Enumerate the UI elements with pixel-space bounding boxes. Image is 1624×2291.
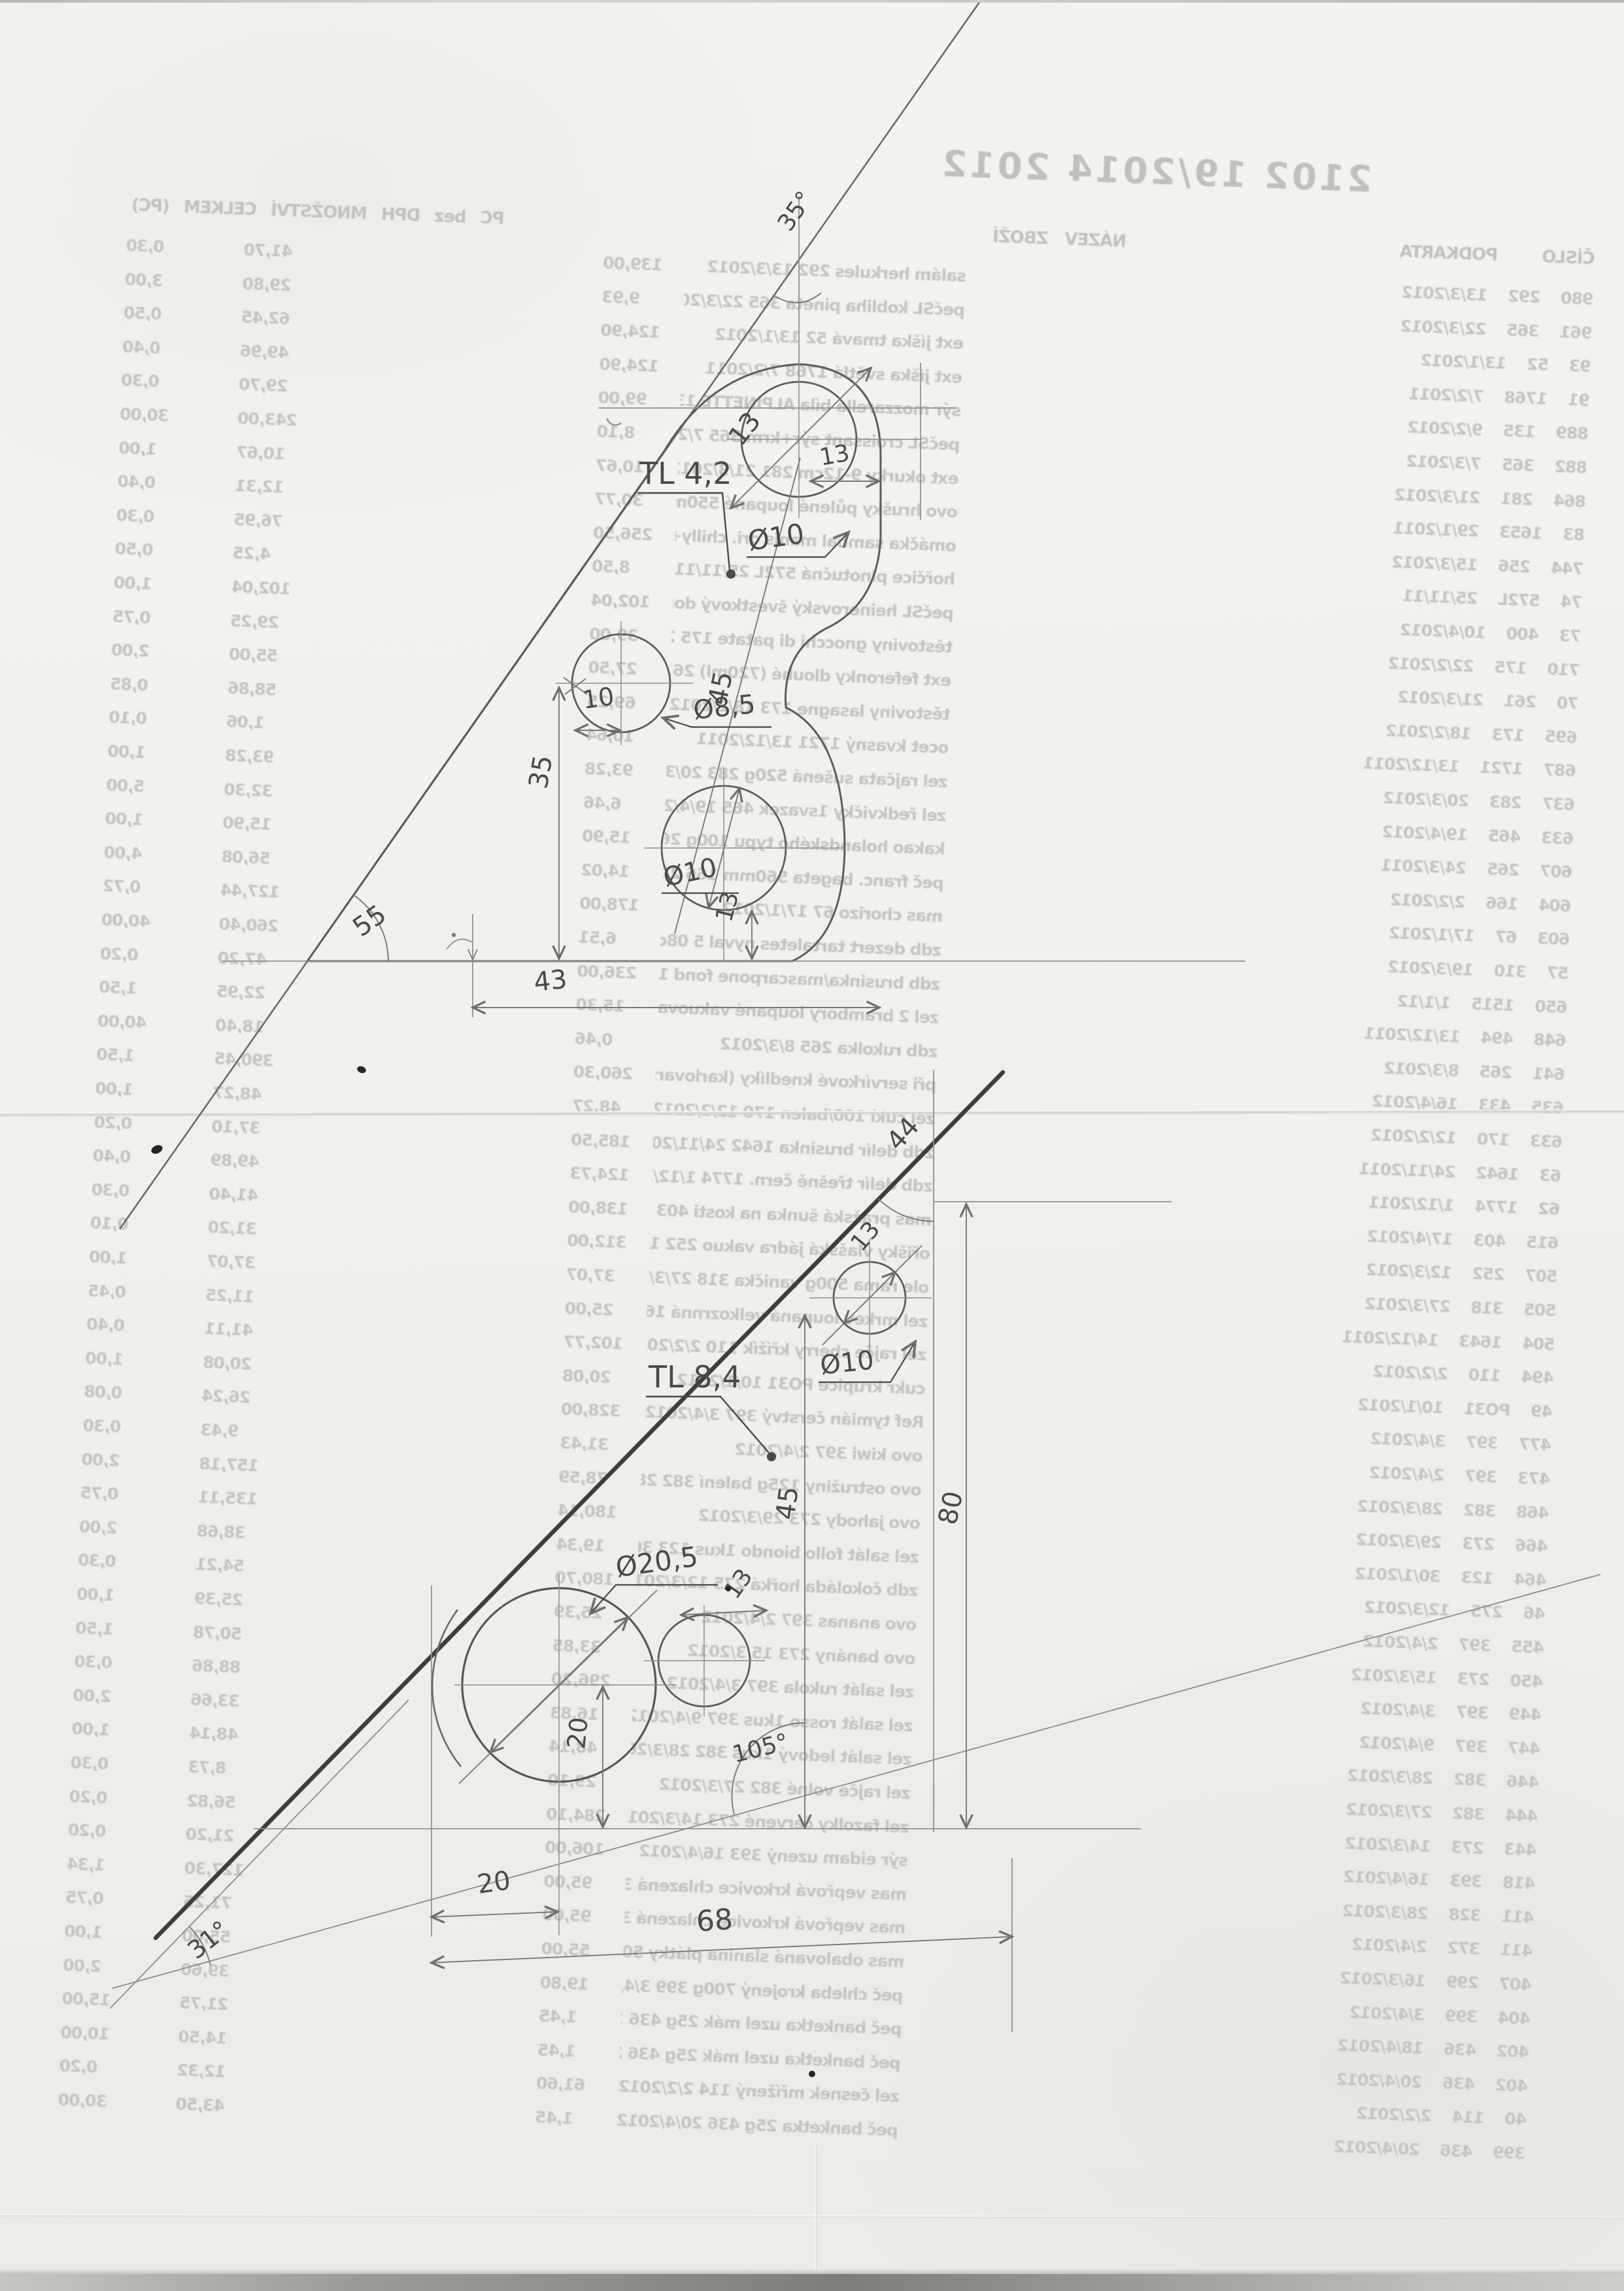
plate1-top-hole-diag-dim: 13 <box>723 407 768 451</box>
plate1-thickness-label: TL 4,2 <box>639 456 732 491</box>
plate2-base-offset-dim: 20 <box>475 1865 513 1900</box>
plate1-base-angle: 55 <box>347 899 392 943</box>
plate2-height-dim-b: 80 <box>933 1489 970 1527</box>
plate2-top-hole-diag-dim: 13 <box>845 1216 885 1256</box>
plate2-apex-angle: 44 <box>881 1112 925 1157</box>
plate1-labels: TL 4,2 13 Ø10 13 Ø8,5 10 35 45 Ø10 13 55… <box>347 186 851 998</box>
plate2-long-diagonal <box>112 1574 1600 1988</box>
plate1-sketch: TL 4,2 13 Ø10 13 Ø8,5 10 35 45 Ø10 13 55… <box>120 1 1245 1229</box>
scan-edge-bottom-shadow <box>0 2269 1624 2274</box>
plate1-outline <box>307 364 881 961</box>
plate1-apex-angle: 35° <box>773 186 819 236</box>
plate2-cross-angle: 105° <box>730 1729 791 1769</box>
plate1-degree-tick <box>452 933 456 937</box>
plate2-thickness-label: TL 8,4 <box>648 1359 741 1395</box>
plate1-centerlines <box>556 364 922 961</box>
plate1-top-hole-dia: Ø10 <box>746 517 806 557</box>
plate2-labels: TL 8,4 44 13 Ø10 45 80 13 Ø20,5 20 105° … <box>182 1112 969 1965</box>
plate2-height-dim-a: 45 <box>770 1485 805 1522</box>
plate2-big-hole-drop-dim: 20 <box>562 1716 594 1750</box>
scan-edge-top <box>0 0 1624 3</box>
plate2-corner-angle: 31° <box>182 1915 234 1965</box>
plate2-centerlines <box>454 1239 932 1935</box>
plate1-base-dim: 43 <box>532 964 568 998</box>
plate2-base-dim: 68 <box>695 1903 734 1939</box>
plate2-small-hole-dim: 13 <box>719 1564 758 1604</box>
plate2-leader-dot <box>767 1452 776 1461</box>
plate2-heavy-hypotenuse <box>156 1072 1003 1938</box>
plate2-construction-lines <box>254 1070 1172 2032</box>
plate1-bottom-hole-dia: Ø10 <box>661 853 720 893</box>
plate1-height-dim: 35 <box>524 753 559 791</box>
plate2-top-hole-dia: Ø10 <box>819 1346 875 1381</box>
plate2-sketch: TL 8,4 44 13 Ø10 45 80 13 Ø20,5 20 105° … <box>110 1070 1600 2032</box>
scan-edge-bottom <box>0 2274 1624 2291</box>
plate2-big-hole-dia: Ø20,5 <box>614 1540 700 1584</box>
scanned-page: 2102 19/2014 2012 ČÍSLO PODKARTA NÁZEV Z… <box>0 0 1624 2291</box>
plate1-bottom-gap-dim: 13 <box>711 889 744 925</box>
pencil-sketch: TL 4,2 13 Ø10 13 Ø8,5 10 35 45 Ø10 13 55… <box>0 0 1624 2291</box>
plate1-top-edge-dim: 13 <box>817 440 851 471</box>
plate2-dimension-lines <box>190 1199 1012 1965</box>
plate1-left-offset-dim: 10 <box>581 682 616 715</box>
plate1-leader-dot <box>726 569 736 579</box>
plate2-corner-line <box>110 1700 409 2009</box>
